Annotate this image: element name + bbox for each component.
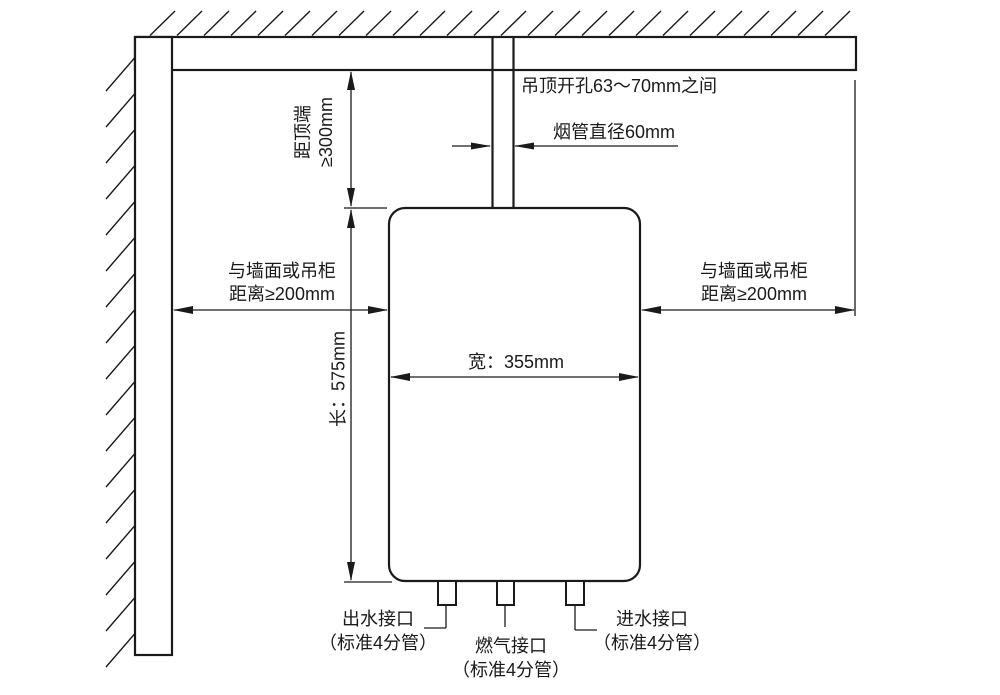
hatch-stroke xyxy=(366,11,391,36)
hatch-stroke xyxy=(609,11,634,36)
hatch-stroke xyxy=(258,11,283,36)
water-inlet-label: 进水接口 （标准4分管） xyxy=(593,607,711,655)
width-label: 宽：355mm xyxy=(468,351,564,374)
hatch-stroke xyxy=(798,11,823,36)
water-inlet-line1: 进水接口 xyxy=(593,607,711,631)
hatch-stroke xyxy=(393,11,418,36)
hatch-stroke xyxy=(771,11,796,36)
ceiling-hatch xyxy=(150,11,850,36)
water-inlet-line2: （标准4分管） xyxy=(593,631,711,655)
left-clearance-label: 与墙面或吊柜 距离≥200mm xyxy=(228,260,336,306)
dim-height xyxy=(344,209,392,582)
hatch-stroke xyxy=(582,11,607,36)
hatch-stroke xyxy=(106,238,135,271)
diagram-linework xyxy=(0,0,1000,695)
hatch-stroke xyxy=(231,11,256,36)
heater-body xyxy=(389,208,640,581)
water-outlet-line1: 出水接口 xyxy=(319,607,437,631)
ceiling-hole-label: 吊顶开孔63～70mm之间 xyxy=(521,75,717,98)
hatch-stroke xyxy=(106,130,135,163)
hatch-stroke xyxy=(717,11,742,36)
right-clearance-line1: 与墙面或吊柜 xyxy=(700,260,808,283)
hatch-stroke xyxy=(285,11,310,36)
hatch-stroke xyxy=(690,11,715,36)
hatch-stroke xyxy=(106,382,135,415)
top-clearance-label: 距顶端 ≥300mm xyxy=(292,97,338,167)
hatch-stroke xyxy=(474,11,499,36)
hatch-stroke xyxy=(150,11,175,36)
outlet-port xyxy=(438,581,456,605)
wall xyxy=(135,37,172,655)
dim-left-clearance xyxy=(173,306,388,314)
hatch-stroke xyxy=(106,310,135,343)
water-outlet-label: 出水接口 （标准4分管） xyxy=(319,607,437,655)
hatch-stroke xyxy=(663,11,688,36)
hatch-stroke xyxy=(528,11,553,36)
hatch-stroke xyxy=(636,11,661,36)
hatch-stroke xyxy=(744,11,769,36)
hatch-stroke xyxy=(447,11,472,36)
top-clearance-line2: ≥300mm xyxy=(315,97,338,167)
hatch-stroke xyxy=(106,94,135,127)
hatch-stroke xyxy=(106,418,135,451)
water-outlet-line2: （标准4分管） xyxy=(319,631,437,655)
hatch-stroke xyxy=(106,634,135,667)
hatch-stroke xyxy=(106,274,135,307)
ceiling-slab xyxy=(135,37,856,70)
hatch-stroke xyxy=(106,490,135,523)
hatch-stroke xyxy=(106,346,135,379)
hatch-stroke xyxy=(106,166,135,199)
right-clearance-line2: 距离≥200mm xyxy=(700,283,808,306)
hatch-stroke xyxy=(312,11,337,36)
dim-top-clearance xyxy=(344,71,387,208)
hatch-stroke xyxy=(204,11,229,36)
hatch-stroke xyxy=(420,11,445,36)
hatch-stroke xyxy=(555,11,580,36)
hatch-stroke xyxy=(106,598,135,631)
hatch-stroke xyxy=(106,58,135,91)
hatch-stroke xyxy=(106,454,135,487)
hatch-stroke xyxy=(106,202,135,235)
left-clearance-line1: 与墙面或吊柜 xyxy=(228,260,336,283)
gas-port xyxy=(497,581,514,605)
flue-diameter-label: 烟管直径60mm xyxy=(553,121,675,144)
top-clearance-line1: 距顶端 xyxy=(292,97,315,167)
hatch-stroke xyxy=(177,11,202,36)
height-label: 长：575mm xyxy=(328,331,351,427)
hatch-stroke xyxy=(825,11,850,36)
hatch-stroke xyxy=(106,526,135,559)
hatch-stroke xyxy=(106,562,135,595)
right-clearance-label: 与墙面或吊柜 距离≥200mm xyxy=(700,260,808,306)
wall-hatch xyxy=(106,58,135,667)
inlet-port xyxy=(566,581,584,605)
gas-connector-line2: （标准4分管） xyxy=(452,658,570,682)
left-clearance-line2: 距离≥200mm xyxy=(228,283,336,306)
installation-diagram: 吊顶开孔63～70mm之间 烟管直径60mm 距顶端 ≥300mm 长：575m… xyxy=(0,0,1000,695)
gas-connector-line1: 燃气接口 xyxy=(452,634,570,658)
gas-connector-label: 燃气接口 （标准4分管） xyxy=(452,634,570,682)
hatch-stroke xyxy=(501,11,526,36)
hatch-stroke xyxy=(339,11,364,36)
